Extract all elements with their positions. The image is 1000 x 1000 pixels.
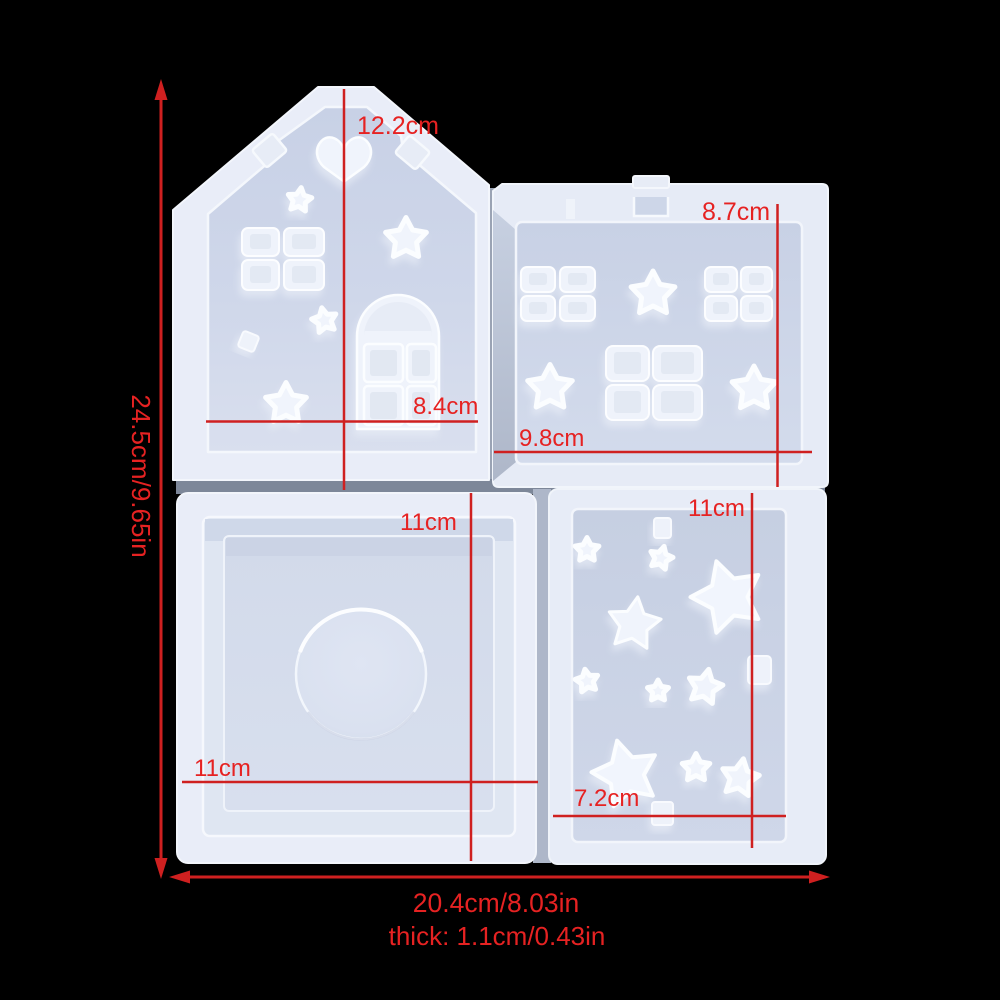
svg-text:11cm: 11cm xyxy=(194,755,251,782)
svg-text:7.2cm: 7.2cm xyxy=(574,785,639,812)
svg-text:11cm: 11cm xyxy=(688,495,745,522)
svg-text:8.4cm: 8.4cm xyxy=(413,393,478,420)
svg-text:thick: 1.1cm/0.43in: thick: 1.1cm/0.43in xyxy=(389,921,606,951)
svg-text:8.7cm: 8.7cm xyxy=(702,198,770,226)
svg-text:12.2cm: 12.2cm xyxy=(357,112,439,140)
svg-text:20.4cm/8.03in: 20.4cm/8.03in xyxy=(413,888,579,918)
svg-text:9.8cm: 9.8cm xyxy=(519,425,584,452)
svg-text:11cm: 11cm xyxy=(400,509,457,536)
svg-text:24.5cm/9.65in: 24.5cm/9.65in xyxy=(126,394,156,557)
